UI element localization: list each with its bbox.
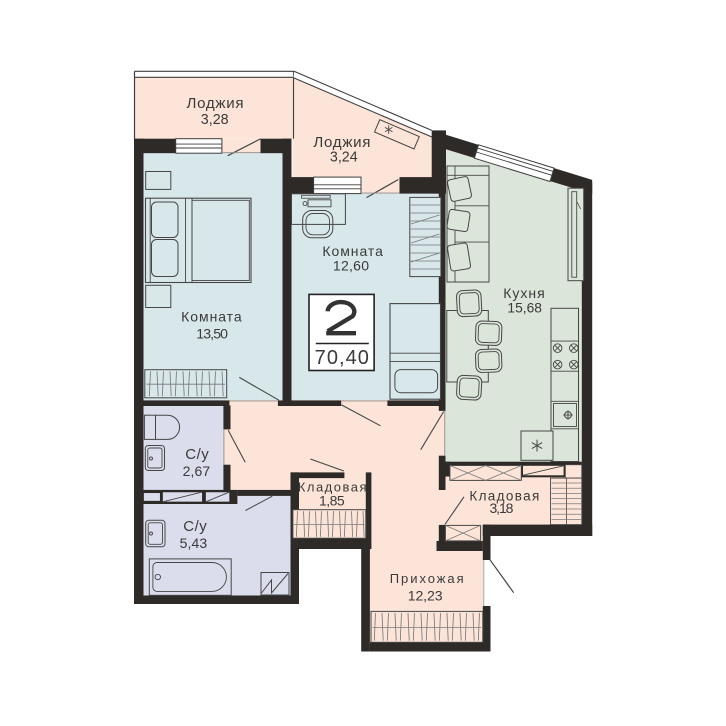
svg-text:3,18: 3,18 bbox=[489, 500, 513, 516]
svg-text:13,50: 13,50 bbox=[196, 325, 228, 341]
svg-text:15,68: 15,68 bbox=[507, 300, 542, 315]
svg-text:1,85: 1,85 bbox=[319, 493, 345, 509]
svg-text:3,24: 3,24 bbox=[330, 150, 358, 166]
svg-text:Лоджия: Лоджия bbox=[313, 134, 371, 151]
svg-text:12,23: 12,23 bbox=[408, 587, 443, 603]
svg-text:5,43: 5,43 bbox=[180, 535, 208, 551]
svg-text:Комната: Комната bbox=[181, 309, 242, 325]
svg-text:Лоджия: Лоджия bbox=[187, 95, 245, 112]
svg-text:Кухня: Кухня bbox=[503, 285, 545, 301]
svg-text:2,67: 2,67 bbox=[183, 463, 211, 479]
svg-text:С/у: С/у bbox=[183, 518, 207, 535]
svg-text:Прихожая: Прихожая bbox=[390, 571, 466, 586]
svg-text:3,28: 3,28 bbox=[201, 112, 229, 128]
svg-text:12,60: 12,60 bbox=[333, 257, 369, 273]
svg-text:70,40: 70,40 bbox=[315, 347, 370, 369]
svg-text:С/у: С/у bbox=[185, 446, 209, 463]
